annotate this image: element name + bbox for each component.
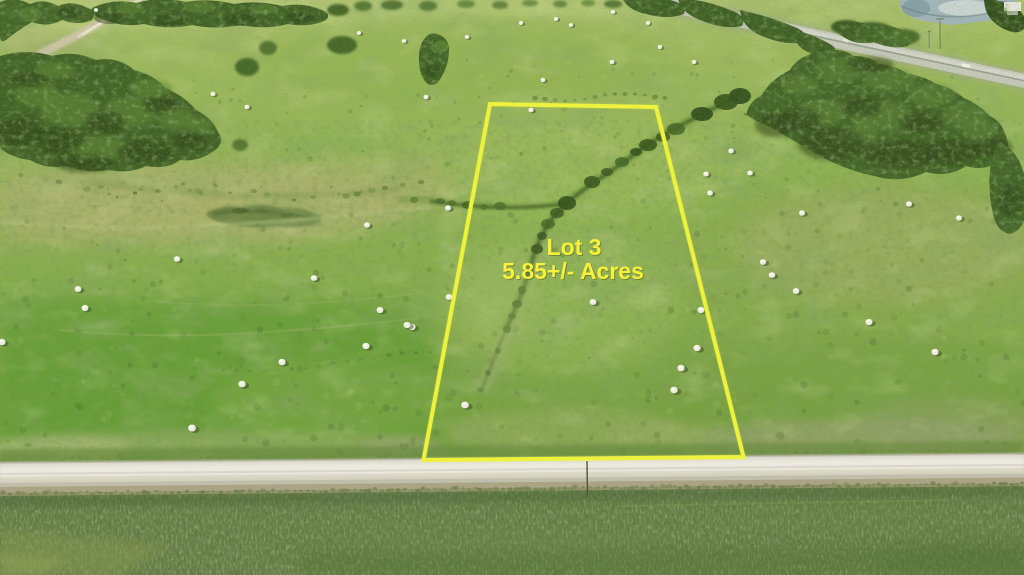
svg-text:Lot 3: Lot 3 — [547, 234, 602, 260]
svg-text:5.85+/- Acres: 5.85+/- Acres — [502, 258, 644, 284]
